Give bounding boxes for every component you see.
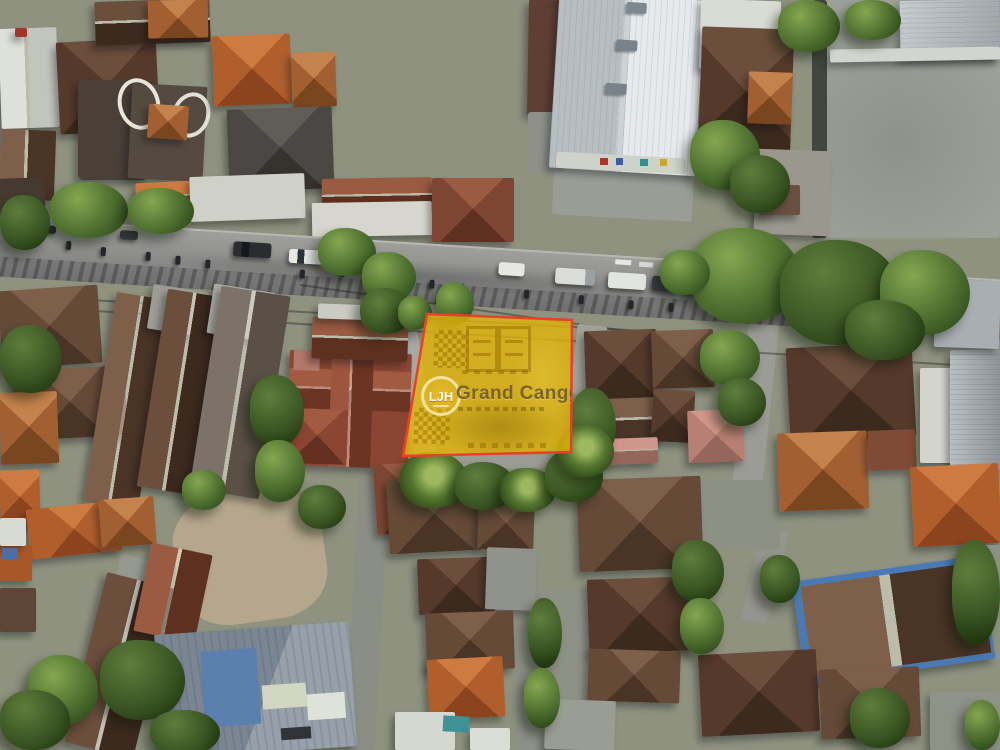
watermark-logo-subbar [433, 405, 449, 407]
watermark-glyph [466, 326, 498, 372]
watermark-pattern [433, 329, 468, 368]
watermark-subtext-bar [458, 407, 544, 411]
watermark-dashes [468, 443, 548, 448]
watermark-logo-text: LJH [429, 389, 454, 404]
watermark-glyph [498, 326, 531, 372]
aerial-photo: LJH Grand Canggu [0, 0, 1000, 750]
watermark-logo: LJH [421, 376, 461, 416]
watermark-dashes [462, 370, 532, 374]
